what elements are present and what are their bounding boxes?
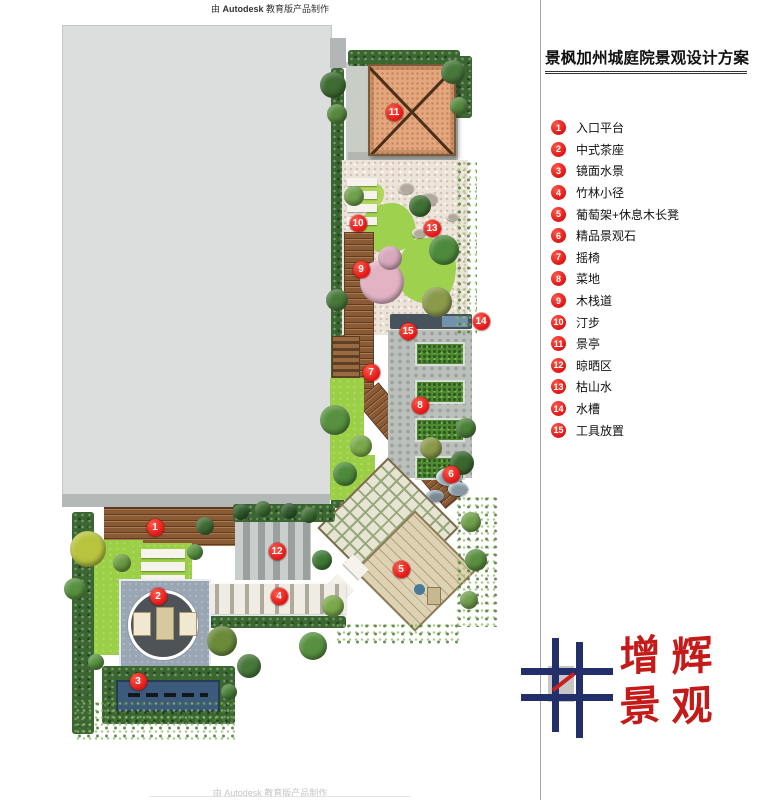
legend-item-14: 14水槽 xyxy=(551,398,741,420)
legend-item-3: 3镜面水景 xyxy=(551,160,741,182)
plan-markers-layer: 123456789101112131415 xyxy=(0,0,540,800)
legend-number-badge: 12 xyxy=(551,358,566,373)
plan-marker-9: 9 xyxy=(353,261,370,278)
legend-item-5: 5葡萄架+休息木长凳 xyxy=(551,203,741,225)
legend-number-badge: 13 xyxy=(551,379,566,394)
logo-char: 增 xyxy=(614,630,666,684)
legend-item-label: 菜地 xyxy=(576,270,600,287)
legend-item-label: 摇椅 xyxy=(576,249,600,266)
plan-marker-10: 10 xyxy=(350,215,367,232)
legend-item-label: 中式茶座 xyxy=(576,141,624,158)
legend-item-8: 8菜地 xyxy=(551,268,741,290)
legend-item-11: 11景亭 xyxy=(551,333,741,355)
legend-number-badge: 7 xyxy=(551,250,566,265)
plan-marker-12: 12 xyxy=(269,543,286,560)
plan-marker-6: 6 xyxy=(443,466,460,483)
legend-item-13: 13枯山水 xyxy=(551,376,741,398)
legend-number-badge: 3 xyxy=(551,163,566,178)
legend-item-label: 景亭 xyxy=(576,335,600,352)
plan-marker-14: 14 xyxy=(473,313,490,330)
legend-item-label: 精品景观石 xyxy=(576,227,636,244)
legend-item-label: 竹林小径 xyxy=(576,184,624,201)
plan-marker-3: 3 xyxy=(130,673,147,690)
plan-marker-13: 13 xyxy=(424,220,441,237)
plan-marker-2: 2 xyxy=(150,588,167,605)
plan-marker-7: 7 xyxy=(363,364,380,381)
page-title: 景枫加州城庭院景观设计方案 xyxy=(545,46,747,74)
logo-char: 辉 xyxy=(666,630,718,684)
plan-marker-5: 5 xyxy=(393,561,410,578)
legend-item-label: 汀步 xyxy=(576,314,600,331)
plan-marker-15: 15 xyxy=(400,323,417,340)
legend-number-badge: 8 xyxy=(551,271,566,286)
company-logo: 增 辉 景 观 xyxy=(518,630,728,750)
logo-char: 景 xyxy=(614,680,666,734)
legend-item-label: 镜面水景 xyxy=(576,162,624,179)
legend-item-label: 工具放置 xyxy=(576,422,624,439)
legend-number-badge: 9 xyxy=(551,293,566,308)
legend: 1入口平台2中式茶座3镜面水景4竹林小径5葡萄架+休息木长凳6精品景观石7摇椅8… xyxy=(551,117,741,441)
legend-item-label: 枯山水 xyxy=(576,378,612,395)
legend-number-badge: 11 xyxy=(551,336,566,351)
legend-item-7: 7摇椅 xyxy=(551,247,741,269)
legend-number-badge: 2 xyxy=(551,142,566,157)
legend-item-label: 葡萄架+休息木长凳 xyxy=(576,206,679,223)
logo-grid-bar xyxy=(576,642,583,738)
legend-item-6: 6精品景观石 xyxy=(551,225,741,247)
legend-number-badge: 10 xyxy=(551,315,566,330)
plan-marker-11: 11 xyxy=(386,104,403,121)
plan-marker-8: 8 xyxy=(412,397,429,414)
legend-item-label: 入口平台 xyxy=(576,119,624,136)
legend-number-badge: 15 xyxy=(551,423,566,438)
legend-item-15: 15工具放置 xyxy=(551,419,741,441)
legend-item-9: 9木栈道 xyxy=(551,290,741,312)
legend-number-badge: 5 xyxy=(551,207,566,222)
legend-number-badge: 4 xyxy=(551,185,566,200)
legend-item-4: 4竹林小径 xyxy=(551,182,741,204)
legend-number-badge: 6 xyxy=(551,228,566,243)
legend-item-12: 12晾晒区 xyxy=(551,355,741,377)
site-plan: 123456789101112131415 xyxy=(0,0,540,800)
legend-item-1: 1入口平台 xyxy=(551,117,741,139)
logo-char: 观 xyxy=(666,680,718,734)
legend-item-label: 水槽 xyxy=(576,400,600,417)
legend-item-10: 10汀步 xyxy=(551,311,741,333)
logo-wordmark: 增 辉 景 观 xyxy=(614,632,718,732)
plan-marker-1: 1 xyxy=(147,519,164,536)
plan-marker-4: 4 xyxy=(271,588,288,605)
legend-item-label: 晾晒区 xyxy=(576,357,612,374)
legend-item-2: 2中式茶座 xyxy=(551,139,741,161)
legend-number-badge: 1 xyxy=(551,120,566,135)
legend-item-label: 木栈道 xyxy=(576,292,612,309)
design-sheet: 由 Autodesk 教育版产品制作 由 Autodesk 教育版产品制作 xyxy=(0,0,774,800)
legend-number-badge: 14 xyxy=(551,401,566,416)
